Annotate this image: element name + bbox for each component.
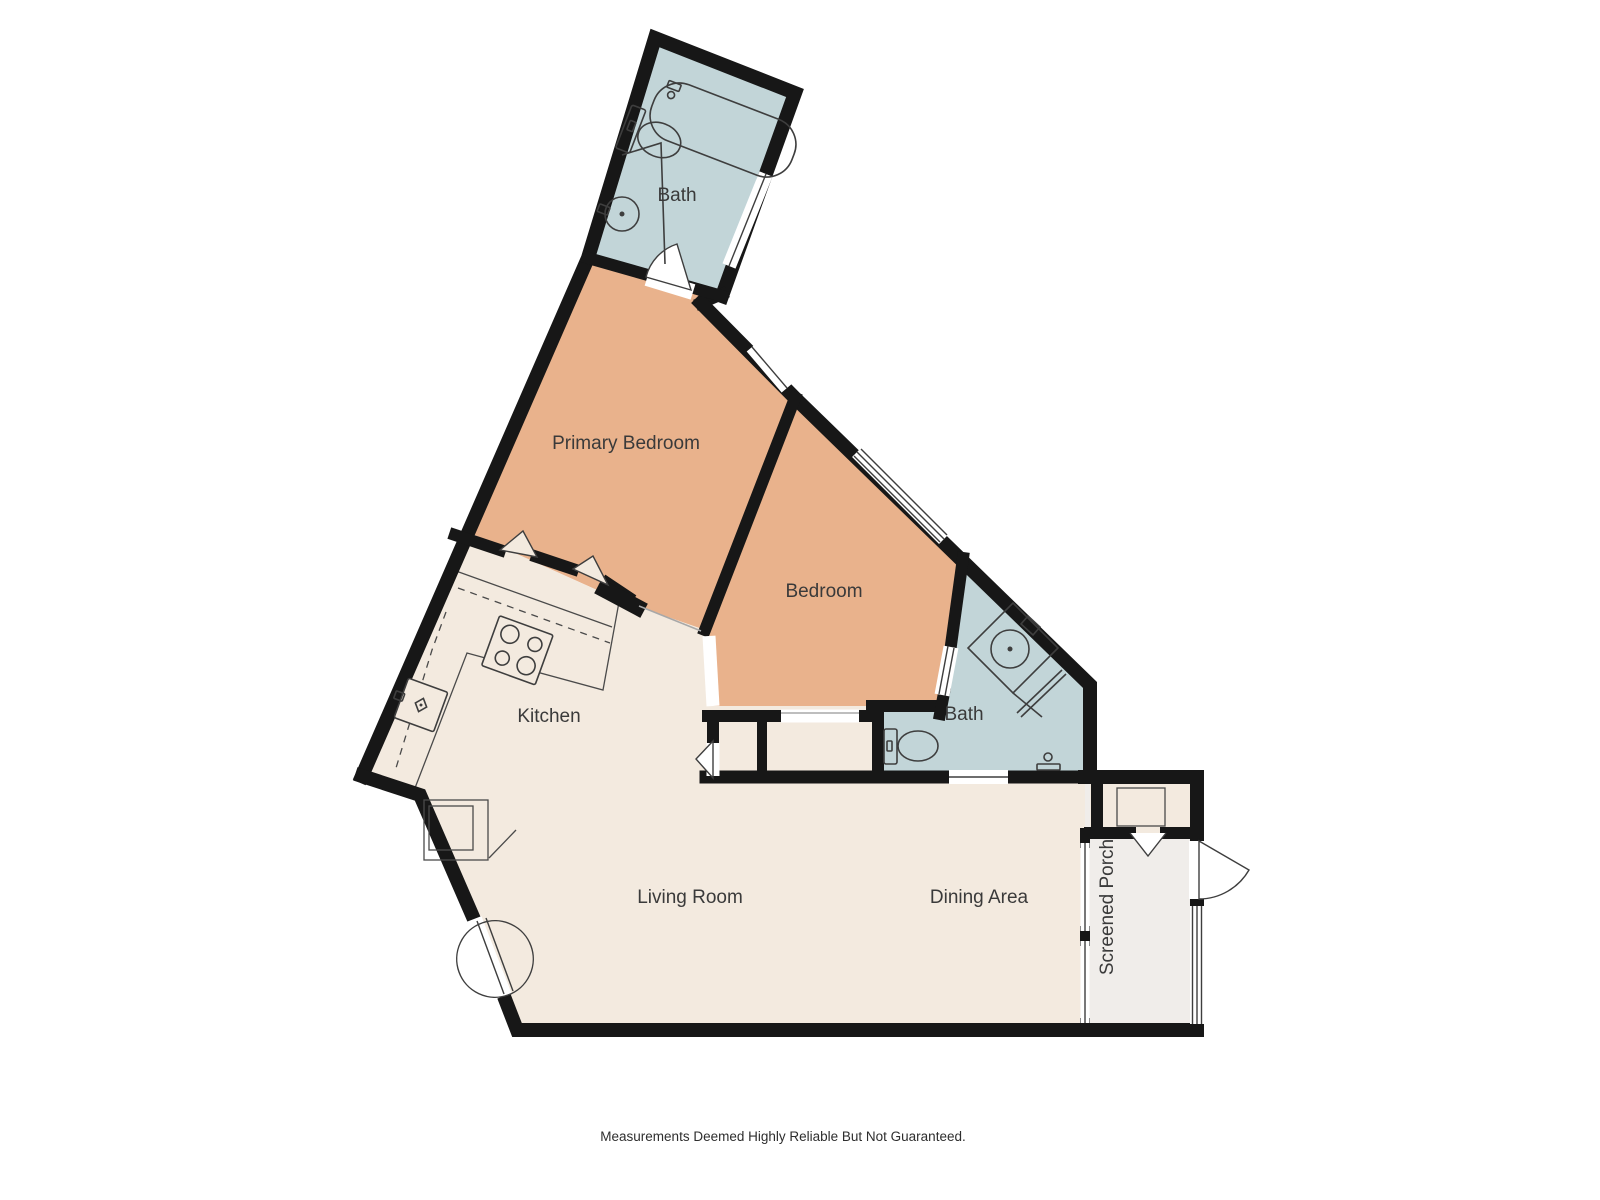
- label-bath-top: Bath: [657, 185, 696, 206]
- floor-plan: Bath Primary Bedroom Bedroom Kitchen Bat…: [0, 0, 1600, 1200]
- label-living-room: Living Room: [637, 887, 743, 908]
- label-primary-bedroom: Primary Bedroom: [552, 433, 700, 454]
- window-porch-east: [1193, 906, 1202, 1024]
- label-kitchen: Kitchen: [517, 706, 580, 727]
- floor-plan-page: Bath Primary Bedroom Bedroom Kitchen Bat…: [0, 0, 1600, 1200]
- label-dining-area: Dining Area: [930, 887, 1029, 908]
- label-screened-porch: Screened Porch: [1097, 839, 1118, 975]
- disclaimer-text: Measurements Deemed Highly Reliable But …: [600, 1129, 965, 1144]
- opening-bedroom-entry: [709, 636, 713, 706]
- label-bedroom: Bedroom: [785, 581, 862, 602]
- label-bath-right: Bath: [944, 704, 983, 725]
- porch-storage-area: [1090, 777, 1192, 833]
- door-arc-porch: [1199, 841, 1249, 899]
